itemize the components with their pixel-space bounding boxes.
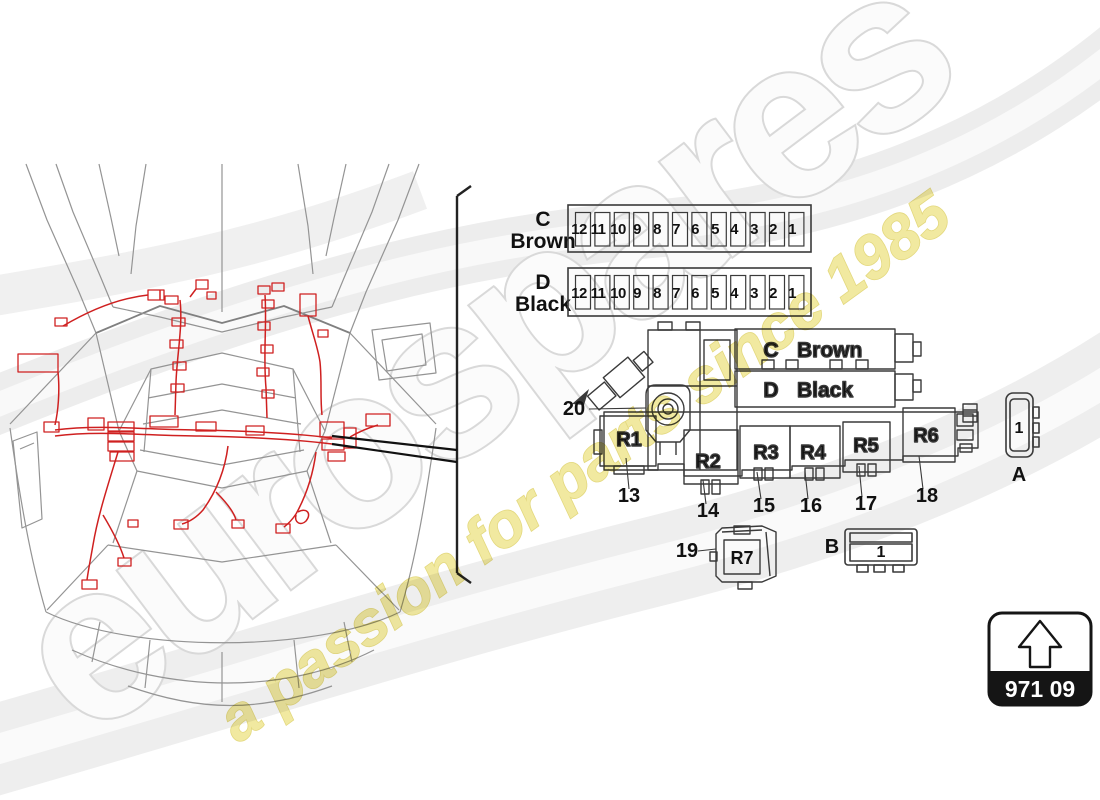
- fuse-d-12: 12: [571, 285, 587, 302]
- fuse-c-3: 3: [750, 221, 758, 238]
- fuse-c-8: 8: [653, 221, 661, 238]
- fuse-d-2: 2: [769, 285, 777, 302]
- fuse-d-7: 7: [672, 285, 680, 302]
- fuse-c-9: 9: [633, 221, 641, 238]
- relay-r6-label: R6: [913, 425, 939, 447]
- relay-r2-label: R2: [695, 451, 721, 473]
- fuse-row-c-id: C: [535, 208, 550, 231]
- connector-a: 1 A: [1006, 393, 1039, 486]
- fuse-row-c-color: Brown: [510, 230, 575, 253]
- callout-15[interactable]: 15: [753, 495, 775, 517]
- fuse-d-11: 11: [591, 285, 606, 302]
- relay-r1-label: R1: [616, 429, 642, 451]
- parts-diagram-canvas: eurospares: [0, 0, 1100, 800]
- fuse-c-1: 1: [788, 221, 796, 238]
- fuse-d-6: 6: [691, 285, 699, 302]
- fuse-d-5: 5: [711, 285, 719, 302]
- connector-a-slot: 1: [1015, 420, 1024, 437]
- fuse-d-9: 9: [633, 285, 641, 302]
- callout-18[interactable]: 18: [916, 485, 938, 507]
- connector-b-label: B: [825, 536, 839, 558]
- fuse-d-3: 3: [750, 285, 758, 302]
- fuse-c-4: 4: [730, 221, 739, 238]
- connector-b: 1 B: [825, 529, 917, 572]
- carrier-bar-d-color: Black: [797, 379, 853, 402]
- callout-17[interactable]: 17: [855, 493, 877, 515]
- fuse-row-d: D Black 12 11 10 9 8 7 6 5 4 3: [515, 268, 811, 316]
- fuse-d-10: 10: [610, 285, 626, 302]
- fuse-c-6: 6: [691, 221, 699, 238]
- zoom-bracket: [457, 186, 471, 583]
- fuse-c-11: 11: [591, 221, 606, 238]
- technical-drawing: C Brown 12 11 10 9 8 7 6 5 4 3: [0, 0, 1100, 800]
- callout-19[interactable]: 19: [676, 540, 698, 562]
- relay-r7-label: R7: [730, 548, 753, 568]
- carrier-bar-c-color: Brown: [797, 339, 862, 362]
- fuse-c-2: 2: [769, 221, 777, 238]
- connector-b-slot: 1: [877, 544, 886, 561]
- leader-lines: [332, 436, 457, 462]
- part-number-label: 971 09: [1005, 676, 1075, 702]
- fuse-c-12: 12: [571, 221, 587, 238]
- relay-r5-label: R5: [853, 435, 879, 457]
- fuse-c-7: 7: [672, 221, 680, 238]
- fuse-d-4: 4: [730, 285, 739, 302]
- relay-r4-label: R4: [800, 442, 826, 464]
- callout-16[interactable]: 16: [800, 495, 822, 517]
- carrier-bar-d-id: D: [763, 379, 778, 402]
- relay-r3-label: R3: [753, 442, 779, 464]
- carrier-bar-c-id: C: [763, 339, 778, 362]
- callout-13[interactable]: 13: [618, 485, 640, 507]
- fuse-row-d-color: Black: [515, 293, 571, 316]
- fuse-row-d-id: D: [535, 271, 550, 294]
- part-number-box[interactable]: 971 09: [989, 613, 1091, 705]
- fuse-c-5: 5: [711, 221, 719, 238]
- fuse-d-8: 8: [653, 285, 661, 302]
- callout-20[interactable]: 20: [563, 398, 585, 420]
- relay-r7: R7: [710, 526, 776, 589]
- connector-a-label: A: [1012, 464, 1026, 486]
- callout-14[interactable]: 14: [697, 500, 720, 522]
- fuse-c-10: 10: [610, 221, 626, 238]
- fuse-d-1: 1: [788, 285, 796, 302]
- fuse-row-c: C Brown 12 11 10 9 8 7 6 5 4 3: [510, 205, 811, 253]
